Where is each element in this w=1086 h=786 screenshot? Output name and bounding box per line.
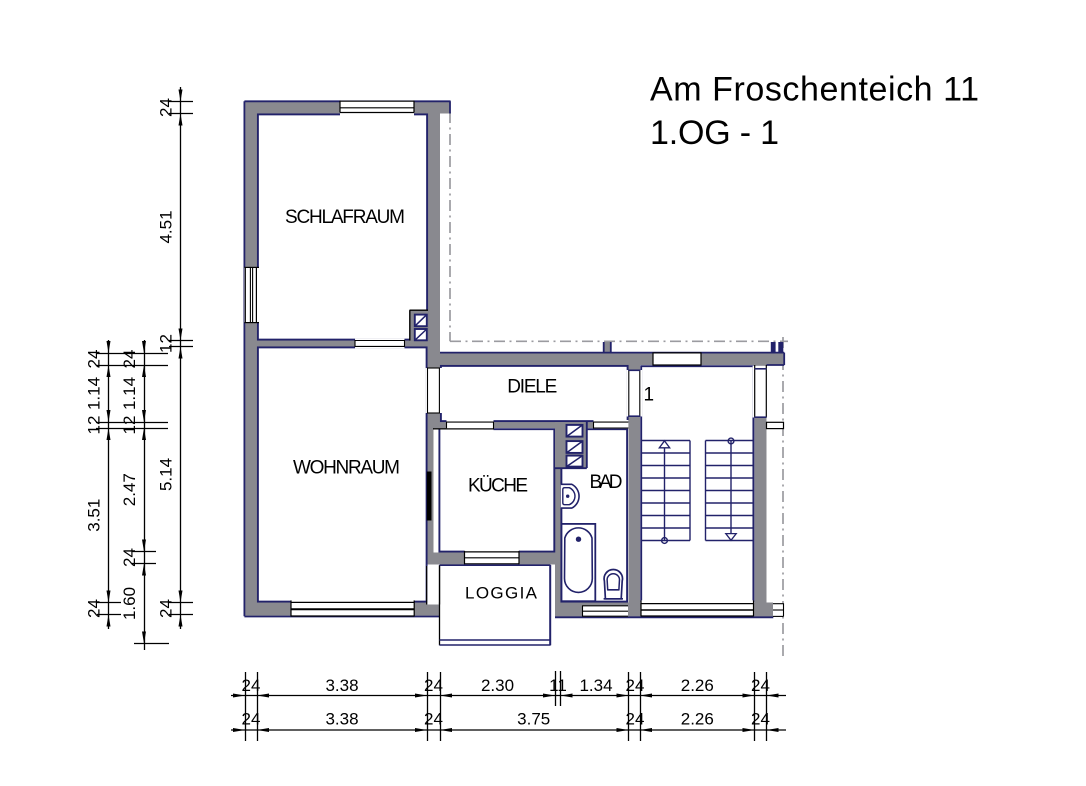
svg-text:1: 1	[644, 384, 655, 405]
svg-text:24: 24	[157, 98, 176, 117]
svg-text:24: 24	[751, 676, 770, 695]
svg-text:24: 24	[85, 350, 104, 369]
svg-text:Am Froschenteich 11: Am Froschenteich 11	[650, 71, 979, 109]
svg-text:24: 24	[157, 599, 176, 618]
svg-text:3.75: 3.75	[517, 710, 550, 729]
svg-text:1.14: 1.14	[85, 377, 104, 410]
svg-text:2.30: 2.30	[481, 676, 514, 695]
svg-text:3.38: 3.38	[325, 710, 358, 729]
svg-text:1.14: 1.14	[120, 377, 139, 410]
svg-text:KÜCHE: KÜCHE	[468, 476, 528, 497]
svg-text:1.60: 1.60	[120, 587, 139, 620]
svg-text:24: 24	[424, 710, 443, 729]
svg-text:4.51: 4.51	[157, 210, 176, 243]
svg-text:12: 12	[120, 416, 139, 435]
svg-text:24: 24	[120, 548, 139, 567]
svg-text:24: 24	[85, 599, 104, 618]
svg-text:BAD: BAD	[590, 472, 623, 493]
svg-text:1.OG - 1: 1.OG - 1	[650, 114, 779, 152]
svg-text:24: 24	[626, 710, 645, 729]
svg-text:WOHNRAUM: WOHNRAUM	[293, 458, 400, 479]
svg-text:24: 24	[424, 676, 443, 695]
svg-text:2.26: 2.26	[681, 710, 714, 729]
svg-text:SCHLAFRAUM: SCHLAFRAUM	[285, 207, 405, 228]
svg-text:5.14: 5.14	[157, 458, 176, 491]
svg-text:12: 12	[157, 334, 176, 353]
svg-text:24: 24	[751, 710, 770, 729]
svg-text:24: 24	[242, 710, 261, 729]
svg-text:3.51: 3.51	[85, 499, 104, 532]
svg-text:11: 11	[549, 676, 567, 695]
svg-text:3.38: 3.38	[325, 676, 358, 695]
svg-text:LOGGIA: LOGGIA	[465, 583, 538, 602]
svg-text:1.34: 1.34	[579, 676, 612, 695]
svg-text:24: 24	[242, 676, 261, 695]
svg-text:DIELE: DIELE	[507, 376, 557, 397]
svg-text:2.26: 2.26	[681, 676, 714, 695]
svg-text:2.47: 2.47	[120, 473, 139, 506]
svg-text:24: 24	[120, 350, 139, 369]
svg-text:12: 12	[85, 416, 104, 435]
svg-text:24: 24	[626, 676, 645, 695]
